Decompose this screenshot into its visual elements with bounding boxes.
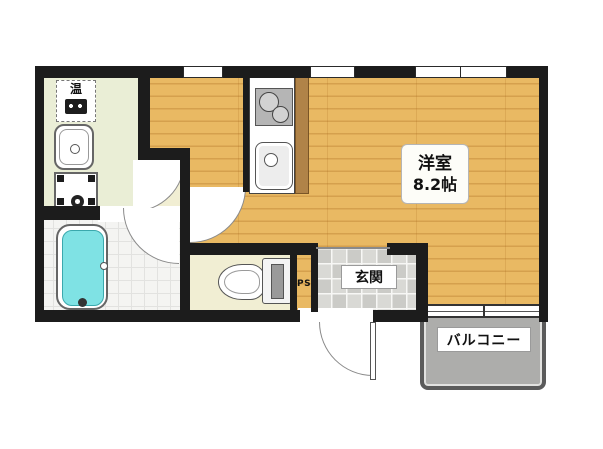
balcony-sliding-window bbox=[428, 304, 539, 318]
bathtub-knob-icon bbox=[100, 262, 108, 270]
wall-hall-step bbox=[138, 148, 190, 160]
wall-washroom-right bbox=[138, 66, 150, 156]
balcony-label: バルコニー bbox=[437, 327, 531, 352]
wall-ps-left bbox=[290, 255, 297, 312]
pipe-space-name: PS bbox=[297, 279, 311, 289]
window-3-left bbox=[415, 66, 461, 78]
kitchen-sink bbox=[255, 142, 293, 190]
sink-tap-icon bbox=[264, 153, 278, 167]
window-1 bbox=[183, 66, 223, 78]
entrance-step-line bbox=[316, 247, 390, 249]
wall-kitchen-side bbox=[243, 72, 249, 192]
counter-strip bbox=[295, 72, 309, 194]
bathtub-water bbox=[62, 230, 104, 306]
toilet-seat-icon bbox=[224, 270, 260, 294]
entrance-label: 玄関 bbox=[341, 265, 397, 289]
wall-bath-top bbox=[35, 206, 100, 220]
burner-small-icon bbox=[272, 106, 289, 123]
gas-stove bbox=[255, 88, 293, 126]
window-3-right bbox=[460, 66, 507, 78]
water-heater-control: 温 bbox=[56, 80, 96, 122]
main-room-name: 洋室 bbox=[418, 153, 452, 175]
water-heater-label: 温 bbox=[57, 82, 95, 96]
pan-corner bbox=[57, 198, 64, 205]
entrance-door-swing bbox=[319, 322, 373, 376]
basin-drain-icon bbox=[70, 144, 80, 154]
bathtub bbox=[56, 224, 108, 310]
water-heater-device-icon bbox=[65, 99, 87, 114]
wall-ps-right bbox=[311, 255, 318, 312]
wall-toilet-left bbox=[180, 160, 190, 312]
window-2 bbox=[310, 66, 355, 78]
toilet-bowl bbox=[218, 264, 266, 300]
wall-right bbox=[539, 66, 548, 322]
washing-machine-pan bbox=[54, 172, 98, 208]
washbasin bbox=[54, 124, 94, 170]
entrance-name: 玄関 bbox=[355, 267, 383, 287]
bathtub-faucet-icon bbox=[78, 298, 87, 307]
main-room-size: 8.2帖 bbox=[413, 175, 457, 195]
toilet-tank-detail bbox=[271, 264, 284, 299]
wall-left bbox=[35, 66, 44, 322]
pipe-space-label: PS bbox=[297, 255, 311, 312]
entrance-door-leaf bbox=[370, 322, 376, 380]
pan-corner bbox=[88, 198, 95, 205]
balcony-name: バルコニー bbox=[447, 330, 522, 350]
toilet-tank bbox=[262, 258, 292, 304]
pan-corner bbox=[57, 175, 64, 182]
main-room-label: 洋室 8.2帖 bbox=[401, 144, 469, 204]
wall-entrance-right bbox=[416, 243, 428, 316]
window-divider-tick bbox=[483, 306, 485, 318]
floor-plan: 温 洋室 8.2帖 bbox=[0, 0, 603, 449]
wall-bottom-left bbox=[35, 310, 300, 322]
wall-toilet-top bbox=[185, 243, 318, 255]
pan-corner bbox=[88, 175, 95, 182]
